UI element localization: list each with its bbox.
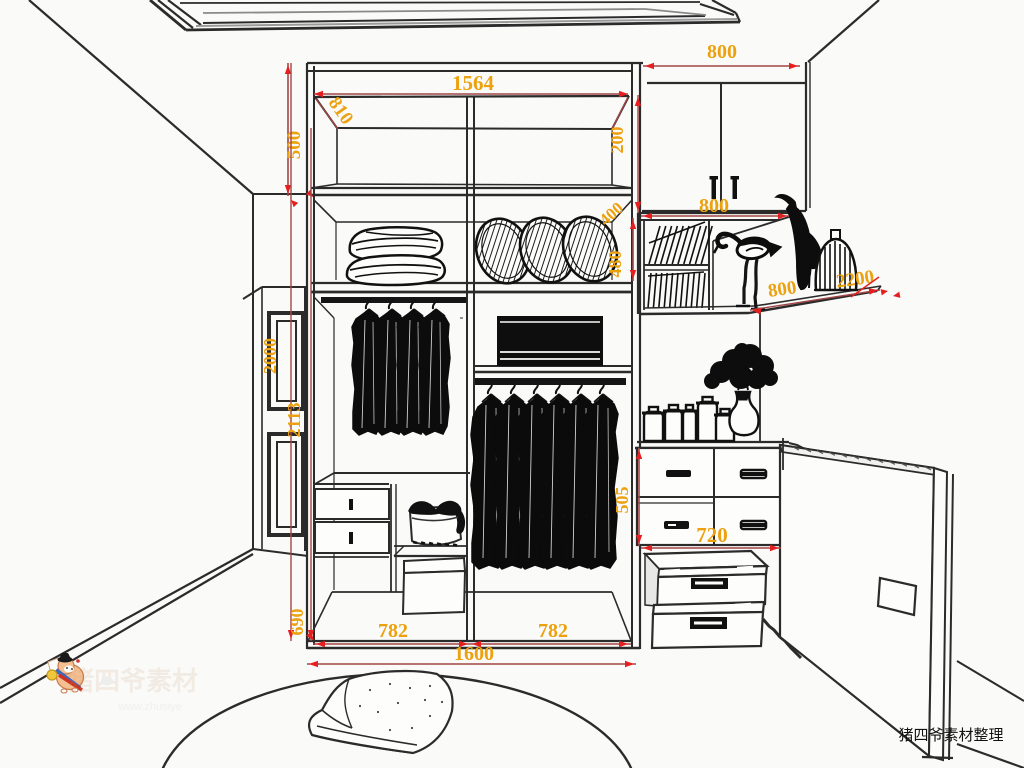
svg-text:782: 782 xyxy=(378,620,408,642)
svg-text:猪四爷素材整理: 猪四爷素材整理 xyxy=(898,727,1003,744)
svg-text:猪四爷素材: 猪四爷素材 xyxy=(68,666,198,696)
svg-text:800: 800 xyxy=(699,195,729,217)
svg-text:500: 500 xyxy=(284,131,305,160)
svg-text:782: 782 xyxy=(538,620,568,642)
svg-text:505: 505 xyxy=(612,487,632,514)
svg-text:480: 480 xyxy=(605,251,625,278)
svg-text:690: 690 xyxy=(287,609,307,636)
svg-text:2113: 2113 xyxy=(284,402,304,437)
svg-text:800: 800 xyxy=(767,277,798,302)
svg-text:1600: 1600 xyxy=(454,643,494,665)
svg-text:www.zhusiye: www.zhusiye xyxy=(117,701,182,713)
svg-text:1564: 1564 xyxy=(452,71,495,95)
svg-text:720: 720 xyxy=(696,523,728,547)
svg-text:800: 800 xyxy=(707,41,737,63)
svg-text:2000: 2000 xyxy=(260,338,280,374)
svg-text:200: 200 xyxy=(607,127,627,154)
